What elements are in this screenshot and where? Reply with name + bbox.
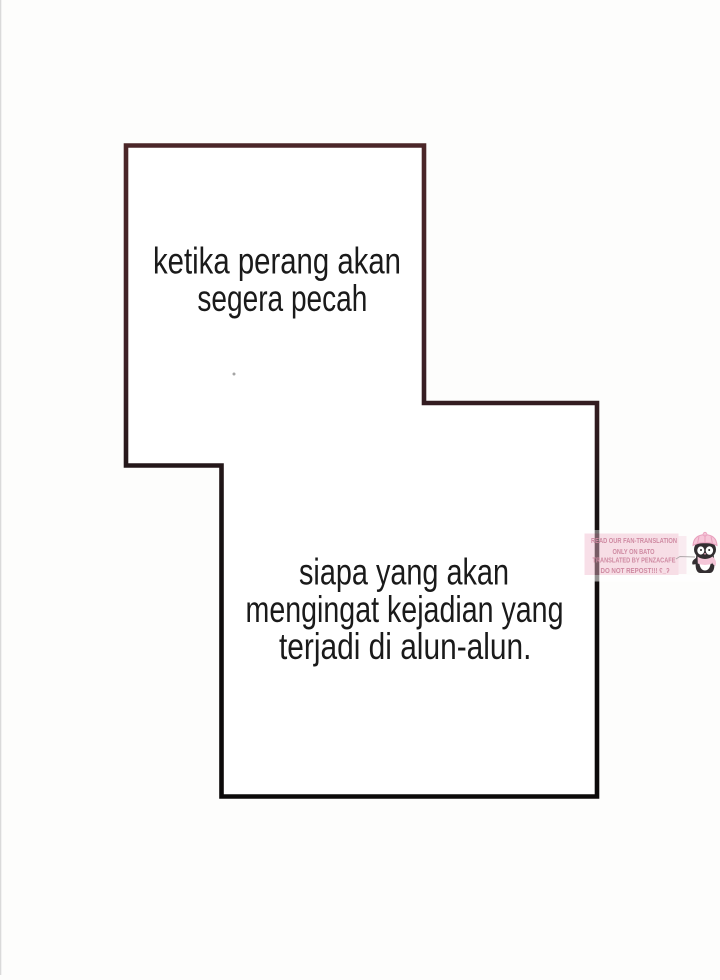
svg-text:ketika perang akan: ketika perang akan [153, 241, 401, 282]
svg-text:READ OUR FAN-TRANSLATION: READ OUR FAN-TRANSLATION [591, 536, 677, 545]
svg-text:mengingat kejadian yang: mengingat kejadian yang [246, 589, 564, 630]
svg-text:ONLY ON BATO: ONLY ON BATO [613, 547, 655, 556]
svg-text:TRANSLATED BY PENZACAFE: TRANSLATED BY PENZACAFE [593, 556, 676, 565]
svg-text:segera pecah: segera pecah [197, 278, 367, 319]
svg-text:siapa yang akan: siapa yang akan [299, 552, 509, 593]
svg-text:DO NOT REPOST!!! ʕ_ʔ: DO NOT REPOST!!! ʕ_ʔ [601, 566, 670, 575]
svg-text:terjadi di alun-alun.: terjadi di alun-alun. [279, 626, 532, 667]
